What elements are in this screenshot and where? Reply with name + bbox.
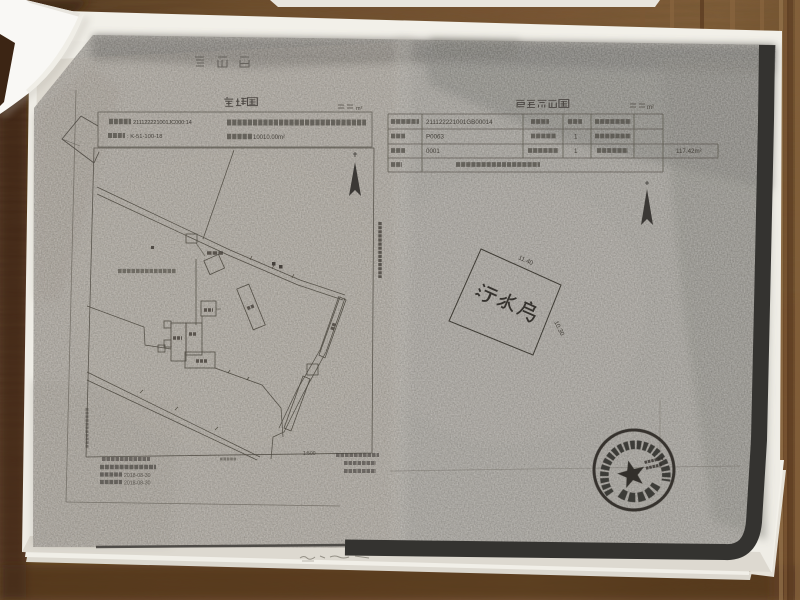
svg-text:m²: m² bbox=[356, 106, 363, 112]
svg-text:m²: m² bbox=[647, 105, 654, 111]
svg-text:1: 1 bbox=[574, 134, 578, 141]
svg-text:211122221001GB00014: 211122221001GB00014 bbox=[426, 119, 493, 126]
svg-text:2018-08-30: 2018-08-30 bbox=[124, 481, 151, 487]
svg-text:1: 1 bbox=[574, 148, 578, 155]
svg-text:1:500: 1:500 bbox=[303, 451, 316, 457]
svg-text:P0063: P0063 bbox=[426, 134, 444, 141]
svg-text:: K-51-100-18: : K-51-100-18 bbox=[127, 134, 162, 140]
svg-text:117.42m²: 117.42m² bbox=[676, 148, 702, 155]
svg-text:0001: 0001 bbox=[426, 148, 440, 155]
svg-text:2018-08-30: 2018-08-30 bbox=[124, 473, 151, 479]
svg-text:211122221001JC000:14: 211122221001JC000:14 bbox=[133, 120, 193, 126]
svg-text:10010.00m²: 10010.00m² bbox=[253, 135, 285, 141]
